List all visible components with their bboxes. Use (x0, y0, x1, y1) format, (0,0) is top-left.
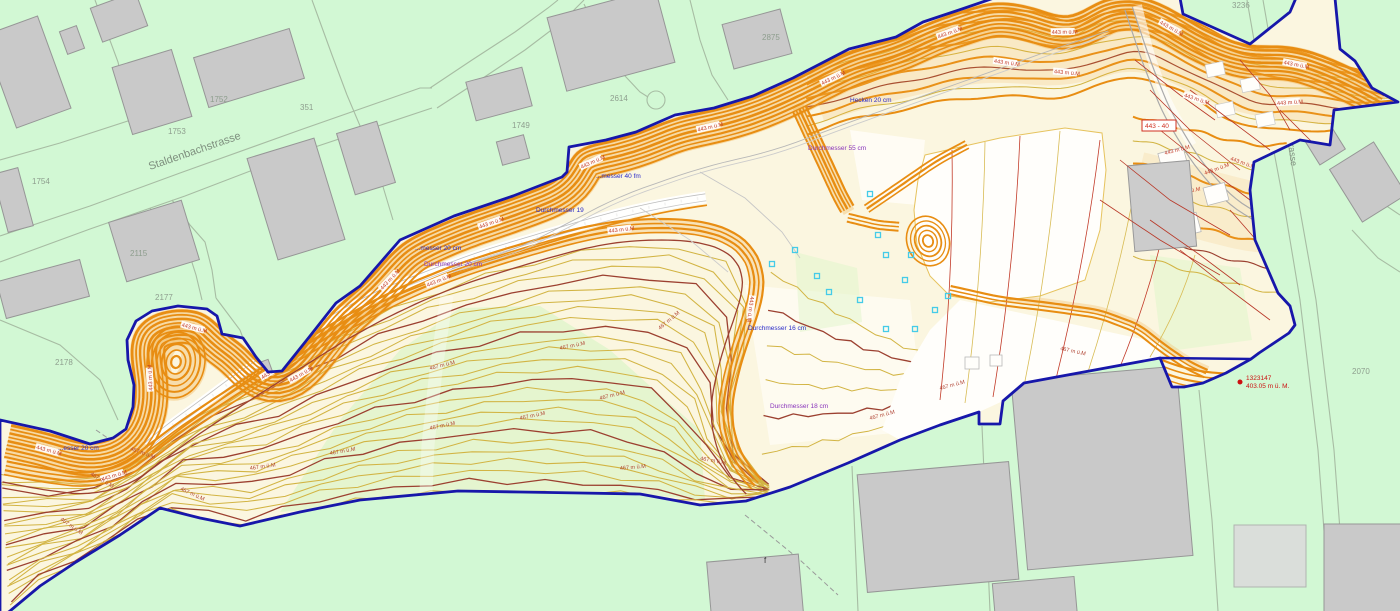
svg-text:1749: 1749 (512, 121, 530, 130)
svg-text:Durchmesser 20 cm: Durchmesser 20 cm (424, 261, 482, 268)
svg-text:Durchmesser 55 cm: Durchmesser 55 cm (808, 145, 866, 152)
svg-text:...esser 20 cm: ...esser 20 cm (58, 445, 99, 452)
svg-text:443 - 40: 443 - 40 (1145, 123, 1169, 130)
svg-text:Durchmesser 19: Durchmesser 19 (536, 207, 584, 214)
svg-text:443 m ü.M: 443 m ü.M (1052, 30, 1079, 36)
svg-text:2070: 2070 (1352, 367, 1370, 376)
svg-text:403.05 m ü. M.: 403.05 m ü. M. (1246, 383, 1290, 390)
svg-text:1753: 1753 (168, 127, 186, 136)
svg-text:2115: 2115 (130, 249, 148, 258)
svg-text:...messer 40 fm: ...messer 40 fm (596, 173, 641, 180)
svg-text:1752: 1752 (210, 95, 228, 104)
svg-text:2178: 2178 (55, 358, 73, 367)
svg-text:2614: 2614 (610, 94, 628, 103)
svg-text:351: 351 (300, 103, 314, 112)
svg-text:2875: 2875 (762, 33, 780, 42)
svg-text:Hecken 20 cm: Hecken 20 cm (850, 97, 892, 104)
svg-text:Durchmesser 18 cm: Durchmesser 18 cm (770, 403, 828, 410)
svg-text:Durchmesser 16 cm: Durchmesser 16 cm (748, 325, 806, 332)
svg-text:2177: 2177 (155, 293, 173, 302)
svg-text:...messer 20 cm: ...messer 20 cm (415, 245, 461, 252)
svg-text:1323147: 1323147 (1246, 375, 1272, 382)
svg-text:1754: 1754 (32, 177, 50, 186)
